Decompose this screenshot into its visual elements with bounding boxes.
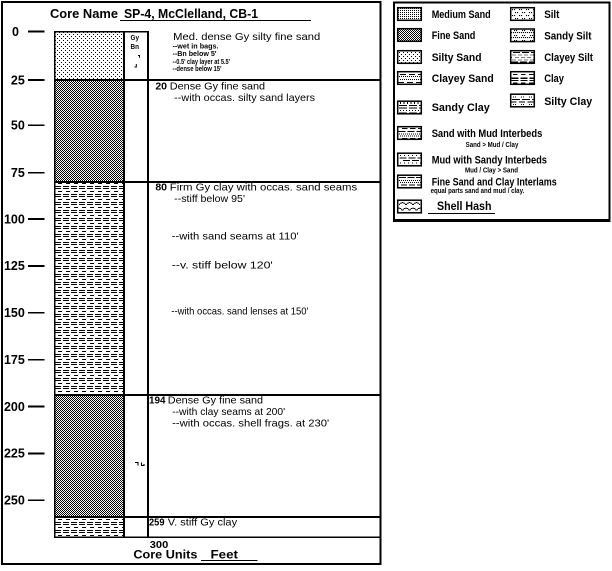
svg-text:Silty Clay: Silty Clay <box>544 96 593 108</box>
svg-text:V. stiff Gy clay: V. stiff Gy clay <box>168 516 238 528</box>
svg-text:Sand with Mud Interbeds: Sand with Mud Interbeds <box>432 128 543 140</box>
svg-text:Dense Gy fine sand: Dense Gy fine sand <box>168 395 263 407</box>
svg-text:194: 194 <box>149 395 166 407</box>
svg-text:250: 250 <box>4 494 25 508</box>
svg-text:--v. stiff below 120': --v. stiff below 120' <box>172 260 273 272</box>
svg-text:Clay: Clay <box>544 73 565 85</box>
svg-text:Dense Gy fine sand: Dense Gy fine sand <box>170 80 265 92</box>
svg-text:Sandy Clay: Sandy Clay <box>432 102 491 114</box>
svg-text:Shell Hash: Shell Hash <box>437 201 492 213</box>
svg-text:175: 175 <box>4 353 25 367</box>
svg-text:--with occas. sand lenses at 1: --with occas. sand lenses at 150' <box>171 305 308 317</box>
svg-text:Fine Sand and Clay Interlams: Fine Sand and Clay Interlams <box>432 176 557 188</box>
svg-text:225: 225 <box>4 447 25 461</box>
svg-text:20: 20 <box>155 80 167 92</box>
svg-text:0: 0 <box>12 25 19 39</box>
svg-text:Bn: Bn <box>131 44 140 51</box>
svg-text:Core Name: Core Name <box>50 6 118 21</box>
svg-text:Fine Sand: Fine Sand <box>432 30 476 42</box>
svg-text:200: 200 <box>4 400 25 414</box>
svg-text:Medium Sand: Medium Sand <box>432 9 491 21</box>
svg-text:Mud / Clay > Sand: Mud / Clay > Sand <box>465 168 518 175</box>
svg-text:80: 80 <box>155 182 167 194</box>
svg-text:Gy: Gy <box>131 35 140 42</box>
svg-text:Firm Gy clay with occas. sand: Firm Gy clay with occas. sand seams <box>170 182 357 194</box>
svg-text:Clayey Sand: Clayey Sand <box>432 73 494 85</box>
svg-text:--with sand seams at 110': --with sand seams at 110' <box>172 230 299 242</box>
svg-text:Silt: Silt <box>544 9 559 21</box>
svg-text:Sand > Mud / Clay: Sand > Mud / Clay <box>466 142 519 149</box>
svg-text:25: 25 <box>11 73 25 87</box>
svg-text:100: 100 <box>4 212 25 226</box>
svg-text:Feet: Feet <box>211 547 239 561</box>
svg-text:--with clay seams at 200': --with clay seams at 200' <box>172 406 285 418</box>
svg-text:259: 259 <box>149 516 165 528</box>
svg-text:--dense below 15': --dense below 15' <box>173 64 222 73</box>
svg-text:equal parts sand and mud / cla: equal parts sand and mud / clay. <box>431 188 525 195</box>
svg-text:75: 75 <box>11 166 25 180</box>
svg-text:Core Units: Core Units <box>133 547 197 561</box>
svg-text:Silty Sand: Silty Sand <box>432 52 482 64</box>
svg-text:150: 150 <box>4 306 25 320</box>
svg-text:--with occas. shell frags. at: --with occas. shell frags. at 230' <box>172 418 329 430</box>
svg-text:Clayey Silt: Clayey Silt <box>544 52 593 64</box>
svg-text:--stiff below 95': --stiff below 95' <box>174 193 245 205</box>
svg-text:Sandy Silt: Sandy Silt <box>544 31 592 43</box>
svg-text:125: 125 <box>4 259 25 273</box>
svg-text:Mud with Sandy Interbeds: Mud with Sandy Interbeds <box>432 154 547 166</box>
svg-text:50: 50 <box>11 119 25 133</box>
svg-text:SP-4, McClelland, CB-1: SP-4, McClelland, CB-1 <box>124 6 258 21</box>
svg-text:--with occas. silty sand layer: --with occas. silty sand layers <box>174 92 315 104</box>
